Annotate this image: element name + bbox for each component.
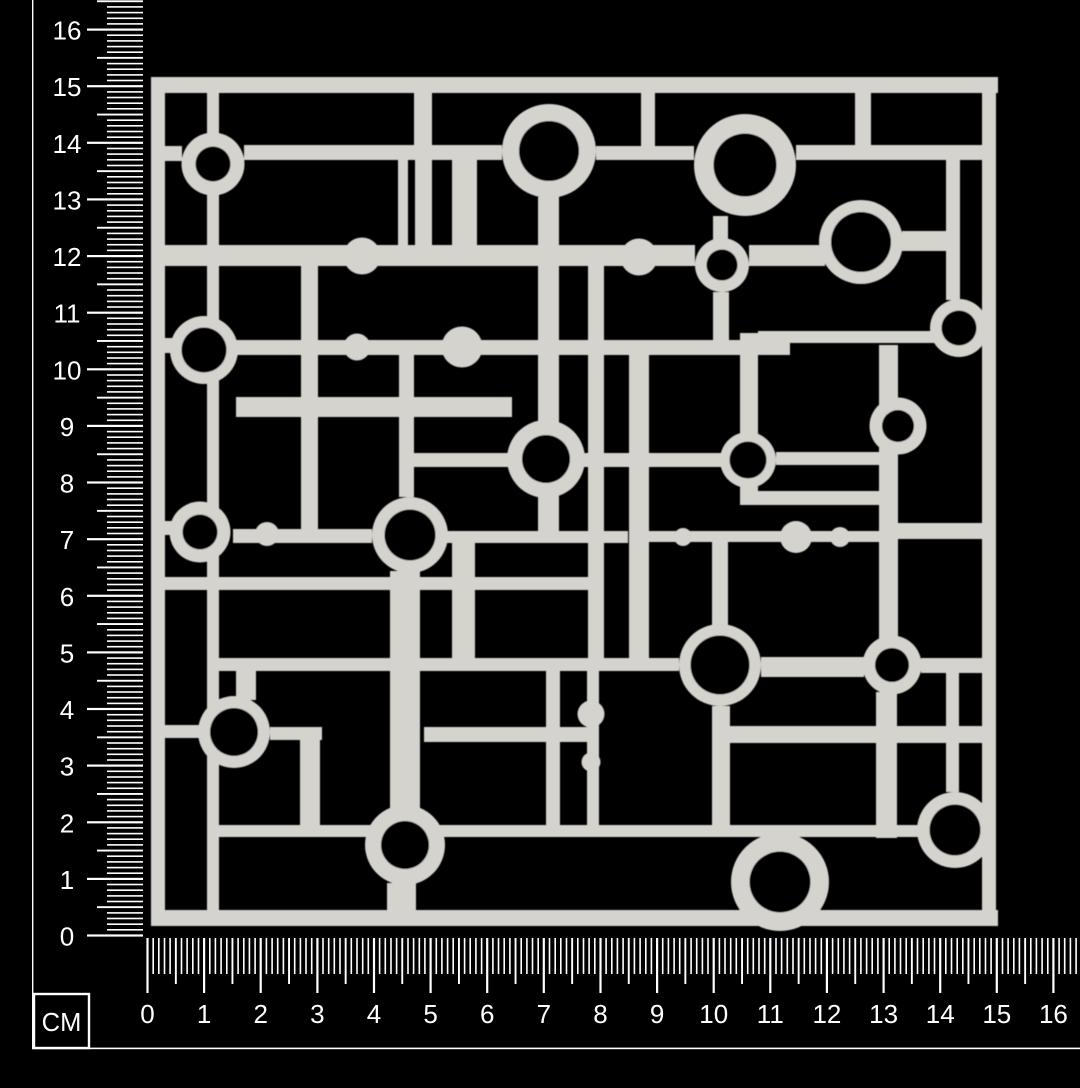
svg-text:14: 14 [53, 129, 82, 159]
svg-text:4: 4 [60, 695, 74, 725]
svg-text:6: 6 [480, 999, 494, 1029]
svg-text:9: 9 [650, 999, 664, 1029]
svg-text:5: 5 [60, 638, 74, 668]
svg-text:8: 8 [60, 469, 74, 499]
svg-text:1: 1 [197, 999, 211, 1029]
svg-text:2: 2 [253, 999, 267, 1029]
svg-text:5: 5 [423, 999, 437, 1029]
svg-text:12: 12 [53, 242, 82, 272]
svg-text:3: 3 [310, 999, 324, 1029]
svg-text:13: 13 [53, 185, 82, 215]
svg-text:10: 10 [699, 999, 728, 1029]
svg-text:9: 9 [60, 412, 74, 442]
svg-text:2: 2 [60, 808, 74, 838]
svg-text:16: 16 [53, 16, 82, 46]
svg-text:7: 7 [537, 999, 551, 1029]
svg-text:11: 11 [757, 999, 784, 1029]
svg-text:0: 0 [140, 999, 154, 1029]
svg-text:14: 14 [926, 999, 955, 1029]
svg-text:16: 16 [1039, 999, 1068, 1029]
svg-text:CM: CM [42, 1009, 82, 1037]
svg-text:1: 1 [60, 865, 74, 895]
svg-text:4: 4 [367, 999, 381, 1029]
svg-text:12: 12 [812, 999, 841, 1029]
svg-text:13: 13 [869, 999, 898, 1029]
svg-text:7: 7 [60, 525, 74, 555]
svg-text:8: 8 [593, 999, 607, 1029]
svg-text:11: 11 [54, 299, 81, 329]
svg-text:3: 3 [60, 752, 74, 782]
svg-text:0: 0 [60, 922, 74, 952]
svg-text:10: 10 [53, 355, 82, 385]
svg-text:6: 6 [60, 582, 74, 612]
svg-text:15: 15 [53, 72, 82, 102]
svg-text:15: 15 [982, 999, 1011, 1029]
